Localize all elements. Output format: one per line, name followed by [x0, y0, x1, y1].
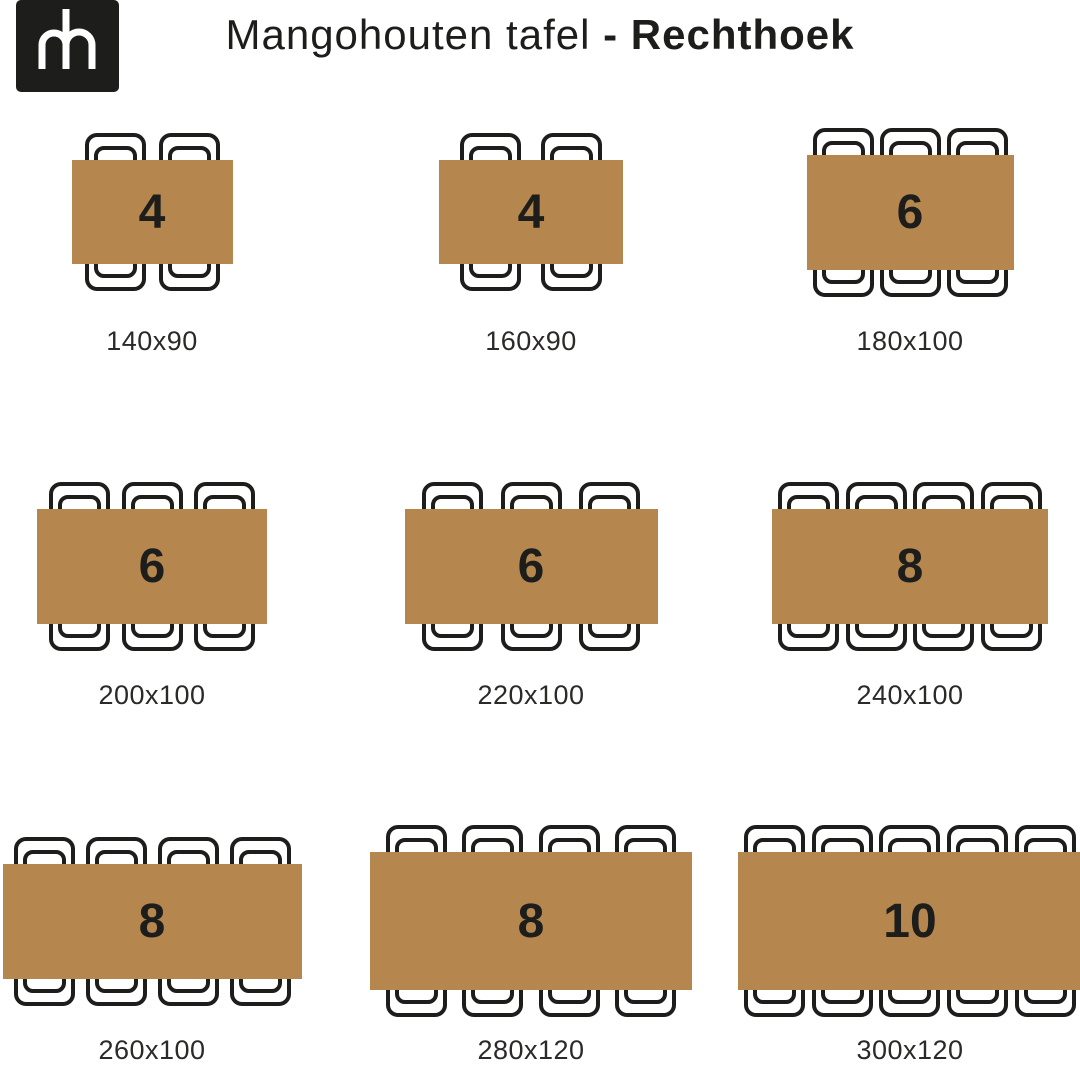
- tabletop: 4: [72, 160, 233, 264]
- tabletop: 6: [37, 509, 267, 624]
- table-config-260x100: 8: [3, 837, 302, 1006]
- page-title: Mangohouten tafel - Rechthoek: [0, 12, 1080, 58]
- tabletop: 8: [3, 864, 302, 979]
- seat-count: 6: [139, 539, 166, 594]
- title-bold: - Rechthoek: [603, 11, 854, 58]
- dimension-label: 280x120: [406, 1033, 656, 1067]
- table-config-280x120: 8: [370, 825, 692, 1017]
- seat-count: 4: [518, 185, 545, 240]
- dimension-label: 300x120: [785, 1033, 1035, 1067]
- table-config-160x90: 4: [439, 133, 623, 291]
- dimension-label: 200x100: [27, 678, 277, 712]
- seat-count: 6: [897, 185, 924, 240]
- table-config-240x100: 8: [772, 482, 1048, 651]
- tabletop: 8: [772, 509, 1048, 624]
- dimension-label: 180x100: [785, 324, 1035, 358]
- tabletop: 6: [807, 155, 1014, 270]
- tabletop: 6: [405, 509, 658, 624]
- seat-count: 10: [883, 894, 936, 949]
- table-config-140x90: 4: [72, 133, 233, 291]
- tabletop: 10: [738, 852, 1080, 990]
- tabletop: 4: [439, 160, 623, 264]
- dimension-label: 160x90: [406, 324, 656, 358]
- table-config-200x100: 6: [37, 482, 267, 651]
- seat-count: 6: [518, 539, 545, 594]
- table-config-220x100: 6: [405, 482, 658, 651]
- dimension-label: 260x100: [27, 1033, 277, 1067]
- infographic-canvas: Mangohouten tafel - Rechthoek 4140x90416…: [0, 0, 1080, 1080]
- table-config-180x100: 6: [807, 128, 1014, 297]
- seat-count: 8: [518, 894, 545, 949]
- dimension-label: 140x90: [27, 324, 277, 358]
- seat-count: 4: [139, 185, 166, 240]
- table-config-300x120: 10: [738, 825, 1080, 1017]
- tabletop: 8: [370, 852, 692, 990]
- seat-count: 8: [897, 539, 924, 594]
- title-regular: Mangohouten tafel: [226, 11, 591, 58]
- dimension-label: 220x100: [406, 678, 656, 712]
- dimension-label: 240x100: [785, 678, 1035, 712]
- seat-count: 8: [139, 894, 166, 949]
